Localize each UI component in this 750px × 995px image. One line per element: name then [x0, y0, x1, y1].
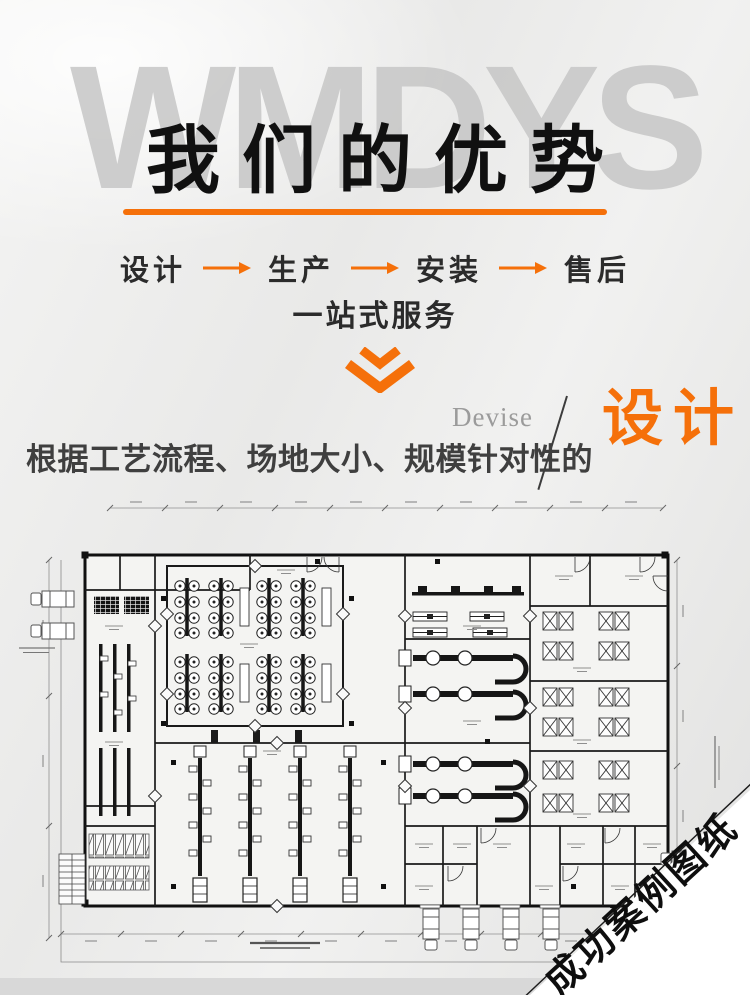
arrow-right-icon — [203, 261, 251, 275]
flow-step-aftersale: 售后 — [564, 247, 630, 289]
arrow-right-icon — [351, 261, 399, 275]
truck — [423, 909, 439, 950]
flow-step-install: 安装 — [416, 247, 482, 289]
one-stop-service-label: 一站式服务 — [0, 291, 750, 335]
stairs — [59, 854, 85, 904]
promo-page: WMDYS 我们的优势 设计 生产 安装 售后 一站式服务 Devise 设计 … — [0, 0, 750, 995]
service-flow: 设计 生产 安装 售后 — [0, 247, 750, 289]
design-eyebrow: Devise — [452, 402, 533, 433]
arrow-right-icon — [499, 261, 547, 275]
flow-step-design: 设计 — [120, 247, 186, 289]
design-keyword: 设计 — [602, 388, 744, 449]
page-title: 我们的优势 — [0, 124, 750, 198]
flow-step-production: 生产 — [268, 247, 334, 289]
truck — [31, 591, 74, 607]
double-chevron-down-icon — [341, 347, 419, 393]
truck — [31, 623, 74, 639]
title-underline — [123, 209, 607, 215]
truck — [463, 909, 479, 950]
page-title-block: 我们的优势 — [0, 124, 750, 198]
design-description: 根据工艺流程、场地大小、规模针对性的 — [26, 434, 593, 479]
corner-banner: 成功案例图纸 — [490, 735, 750, 995]
